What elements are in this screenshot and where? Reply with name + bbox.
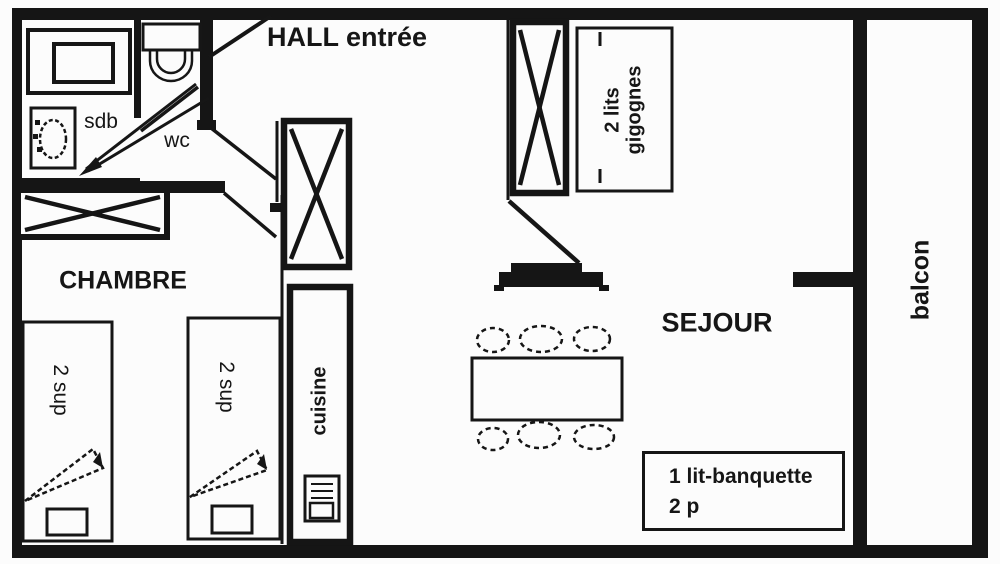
pillow-icon [47, 509, 87, 535]
label-chambre: CHAMBRE [59, 267, 187, 296]
toilet-icon [143, 24, 200, 81]
label-bed2-2sup: 2 sup [214, 361, 238, 412]
washbasin-icon [31, 108, 75, 168]
floor-plan: HALL entrée CHAMBRE SEJOUR balcon cuisin… [0, 0, 1000, 564]
label-wc: wc [164, 129, 190, 153]
wardrobe-crossbox-hall [284, 121, 349, 267]
wardrobe-crossbox-chambre [18, 190, 167, 237]
bed-1 [23, 322, 112, 541]
balcony-divider-wall [853, 18, 867, 545]
sdb-wc-partition [134, 18, 141, 118]
label-balcon: balcon [907, 240, 936, 321]
sejour-wall-piece [511, 263, 582, 272]
thin-partitions [277, 20, 508, 544]
label-sdb: sdb [84, 110, 118, 134]
hall-leader-line [209, 16, 271, 57]
chair-icons [477, 326, 614, 450]
chambre-door-swing [224, 193, 276, 237]
bed-pullout-arrow [25, 449, 103, 501]
banquette-line2: 2 p [669, 492, 842, 522]
banquette-line1: 1 lit-banquette [669, 462, 842, 492]
pillow-icon [212, 506, 252, 533]
banquette-note-box: 1 lit-banquette 2 p [642, 451, 845, 531]
lits-gigognes-line1: 2 lits [602, 66, 624, 155]
lits-gigognes-line2: gigognes [624, 66, 646, 155]
label-hall-entree: HALL entrée [267, 22, 427, 53]
label-lits-gigognes: 2 lits gigognes [602, 66, 647, 155]
bathtub-icon [28, 30, 130, 93]
label-cuisine: cuisine [309, 367, 332, 436]
balcony-stub-wall [793, 272, 855, 287]
sejour-door-swing [509, 201, 579, 263]
wardrobe-crossbox-sejour [513, 22, 566, 193]
bed-2 [188, 318, 280, 539]
stove-icon [305, 476, 339, 521]
bed-pullout-arrow [190, 451, 267, 497]
label-sejour: SEJOUR [661, 308, 772, 339]
dining-table-icon [472, 358, 622, 420]
label-bed1-2sup: 2 sup [48, 364, 72, 415]
wc-wall [200, 18, 213, 122]
